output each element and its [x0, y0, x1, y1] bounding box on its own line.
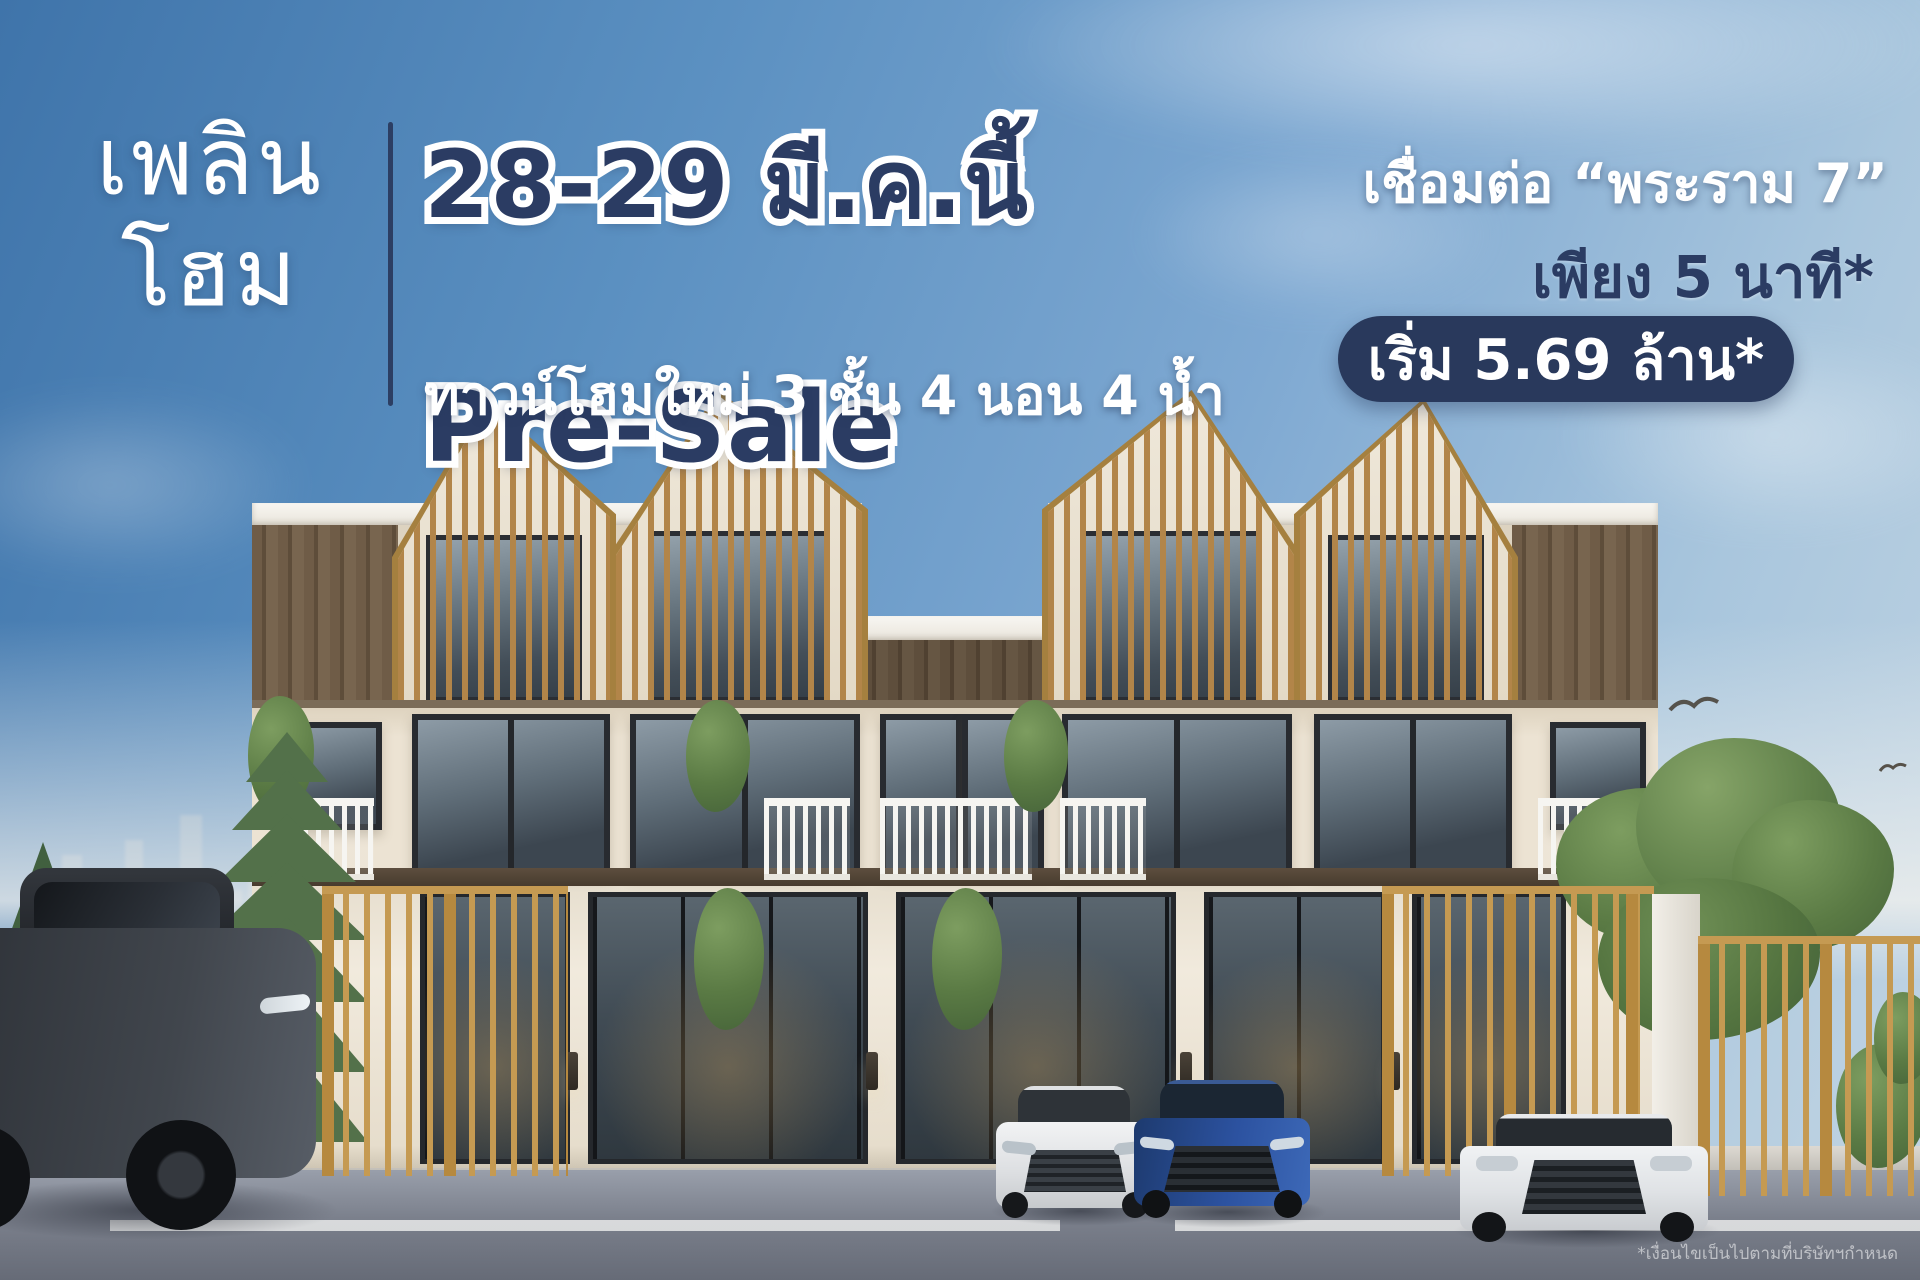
window [1314, 714, 1512, 874]
balcony-railing [1060, 798, 1146, 880]
gold-fence [1698, 936, 1920, 1196]
gold-fence-gate [322, 886, 568, 1176]
brand-logo: เพลิน โฮม [72, 108, 348, 330]
end-wall-wood [252, 525, 398, 705]
car-white-suv [1460, 1114, 1708, 1242]
center-recess-wood [862, 640, 1048, 705]
eave-line [252, 700, 1658, 708]
bird-icon [1668, 692, 1720, 720]
travel-time-text: เพียง 5 นาที* [1532, 230, 1874, 323]
car-wheel [1274, 1190, 1302, 1218]
divider-line [388, 122, 393, 406]
car-grille [1164, 1146, 1280, 1192]
center-parapet [858, 616, 1052, 642]
disclaimer-text: *เงื่อนไขเป็นไปตามที่บริษัทฯกำหนด [1637, 1240, 1898, 1267]
headline-subtitle: ทาวน์โฮมใหม่ 3 ชั้น 4 นอน 4 น้ำ [424, 352, 1225, 438]
car-wheel [1142, 1190, 1170, 1218]
balcony-railing [764, 798, 850, 880]
car-headlight [1650, 1156, 1692, 1171]
price-badge: เริ่ม 5.69 ล้าน* [1338, 316, 1794, 402]
car-wheel [1660, 1212, 1694, 1242]
car-headlight [1476, 1156, 1518, 1171]
wall-lamp [866, 1052, 878, 1090]
car-dark-suv [0, 868, 330, 1240]
balcony-railing [880, 798, 1032, 880]
location-connect-text: เชื่อมต่อ “พระราม 7” [1363, 140, 1888, 226]
car-grille [1522, 1160, 1646, 1214]
car-blue-sedan [1134, 1080, 1310, 1218]
window [412, 714, 610, 874]
car-wheel [1002, 1192, 1028, 1218]
bird-icon [1878, 760, 1908, 776]
car-grille [1024, 1150, 1126, 1192]
car-white-sedan [996, 1086, 1154, 1218]
price-badge-text: เริ่ม 5.69 ล้าน* [1368, 315, 1765, 404]
car-wheel [126, 1120, 236, 1230]
end-wall-wood [1512, 525, 1658, 705]
logo-line-1: เพลิน [72, 108, 348, 219]
logo-line-2: โฮม [72, 219, 348, 330]
promo-banner: เพลิน โฮม 28-29 มี.ค.นี้ Pre-Sale ทาวน์โ… [0, 0, 1920, 1280]
car-wheel [1472, 1212, 1506, 1242]
